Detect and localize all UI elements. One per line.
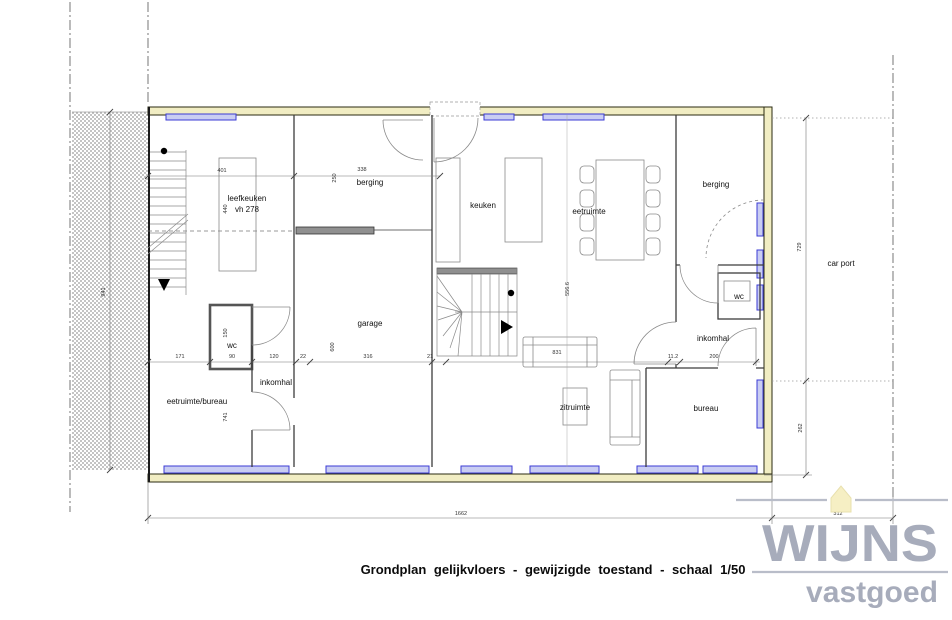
door-front-keuken — [434, 118, 478, 162]
dim-112: 11.2 — [668, 354, 678, 360]
label-carport: car port — [827, 259, 855, 268]
chair — [646, 190, 660, 207]
window-bottom-6 — [703, 466, 757, 473]
dim-berging-left-w: 338 — [357, 167, 366, 173]
window-top-leefkeuken — [166, 114, 236, 120]
stairs-left-treads — [150, 152, 186, 287]
logo-house-icon — [831, 486, 851, 512]
dim-leefkeuken-h: 440 — [223, 204, 229, 213]
window-bottom-3 — [461, 466, 512, 473]
dim-leefkeuken-w: 401 — [217, 168, 226, 174]
chair — [580, 190, 594, 207]
logo-brand-text: WIJNS — [762, 515, 938, 573]
label-leefkeuken-sub: vh 278 — [235, 205, 260, 214]
floorplan-page: 401 338 440 250 941 171 90 120 22 316 21… — [0, 0, 952, 620]
dim-200: 200 — [709, 354, 718, 360]
stairs-left-start-dot — [161, 148, 167, 154]
dim-carport-bottom: 262 — [798, 423, 804, 432]
dim-120: 120 — [269, 354, 278, 360]
sofa-small-body — [610, 370, 640, 445]
label-leefkeuken: leefkeuken — [228, 194, 267, 203]
dim-316: 316 — [363, 354, 372, 360]
door-berging-right-dashed — [706, 200, 764, 258]
door-hall-top — [252, 307, 290, 345]
stairs-center-top-bar — [437, 268, 517, 274]
window-right-4 — [757, 380, 763, 428]
keuken-counter — [436, 158, 460, 262]
label-wc-right: wc — [733, 292, 744, 301]
sofa-small-lines — [610, 380, 640, 437]
label-zitruimte: zitruimte — [560, 403, 591, 412]
dim-741: 741 — [223, 412, 229, 421]
keuken-island — [505, 158, 542, 242]
label-wc-left: wc — [226, 341, 237, 350]
door-wc-right — [680, 265, 718, 303]
stairs-left-arrow — [158, 279, 170, 291]
dim-sofa: 831 — [552, 350, 561, 356]
door-berging-left — [383, 120, 423, 160]
sofa-small — [610, 370, 640, 445]
stairs-center — [437, 268, 517, 356]
label-eetruimte-bureau: eetruimte/bureau — [167, 397, 227, 406]
label-garage: garage — [358, 319, 383, 328]
wall-right — [764, 107, 772, 482]
stairs-center-treads-upper — [472, 274, 508, 312]
wall-berging-garage — [296, 227, 374, 234]
window-right-1 — [757, 203, 763, 236]
dim-90: 90 — [229, 354, 235, 360]
label-berging-left: berging — [357, 178, 384, 187]
dim-left-total: 941 — [101, 287, 107, 296]
floorplan-drawing: 401 338 440 250 941 171 90 120 22 316 21… — [0, 0, 952, 620]
dim-171: 171 — [175, 354, 184, 360]
chair — [646, 214, 660, 231]
logo: WIJNS vastgoed — [736, 486, 948, 609]
dim-600: 600 — [330, 342, 336, 351]
logo-tagline-text: vastgoed — [806, 576, 938, 609]
stairs-center-winders — [437, 276, 462, 356]
label-eetruimte: eetruimte — [572, 207, 606, 216]
window-bottom-4 — [530, 466, 599, 473]
stairs-left-breakline — [148, 214, 188, 254]
window-top-eetruimte — [543, 114, 604, 120]
chair — [646, 238, 660, 255]
chair — [580, 214, 594, 231]
dim-carport-top: 729 — [797, 242, 803, 251]
chair — [646, 166, 660, 183]
dim-22: 22 — [300, 354, 306, 360]
stairs-center-start-dot — [508, 290, 514, 296]
chair — [580, 238, 594, 255]
stairs-center-treads-lower — [472, 312, 508, 356]
stairs-center-arrow — [501, 320, 513, 334]
window-top-keuken — [484, 114, 514, 120]
label-keuken: keuken — [470, 201, 496, 210]
dim-berging-left-h: 250 — [332, 173, 338, 182]
label-inkomhal-left: inkomhal — [260, 378, 292, 387]
label-bureau: bureau — [694, 404, 719, 413]
dim-total-w: 1662 — [455, 511, 467, 517]
window-bottom-2 — [326, 466, 429, 473]
dim-150: 150 — [223, 328, 229, 337]
entry-recess — [430, 102, 480, 116]
door-hall-bottom — [252, 392, 290, 430]
chair — [580, 166, 594, 183]
dim-21: 21 — [427, 354, 433, 360]
interior-walls — [148, 115, 764, 467]
stairs-left — [148, 148, 188, 295]
dim-center-ref: 556.6 — [565, 282, 571, 296]
window-bottom-1 — [164, 466, 289, 473]
label-berging-right: berging — [703, 180, 730, 189]
window-bottom-5 — [637, 466, 698, 473]
windows — [164, 114, 763, 473]
wall-bottom — [148, 474, 772, 482]
drawing-title: Grondplan gelijkvloers - gewijzigde toes… — [361, 562, 746, 577]
label-inkomhal-right: inkomhal — [697, 334, 729, 343]
